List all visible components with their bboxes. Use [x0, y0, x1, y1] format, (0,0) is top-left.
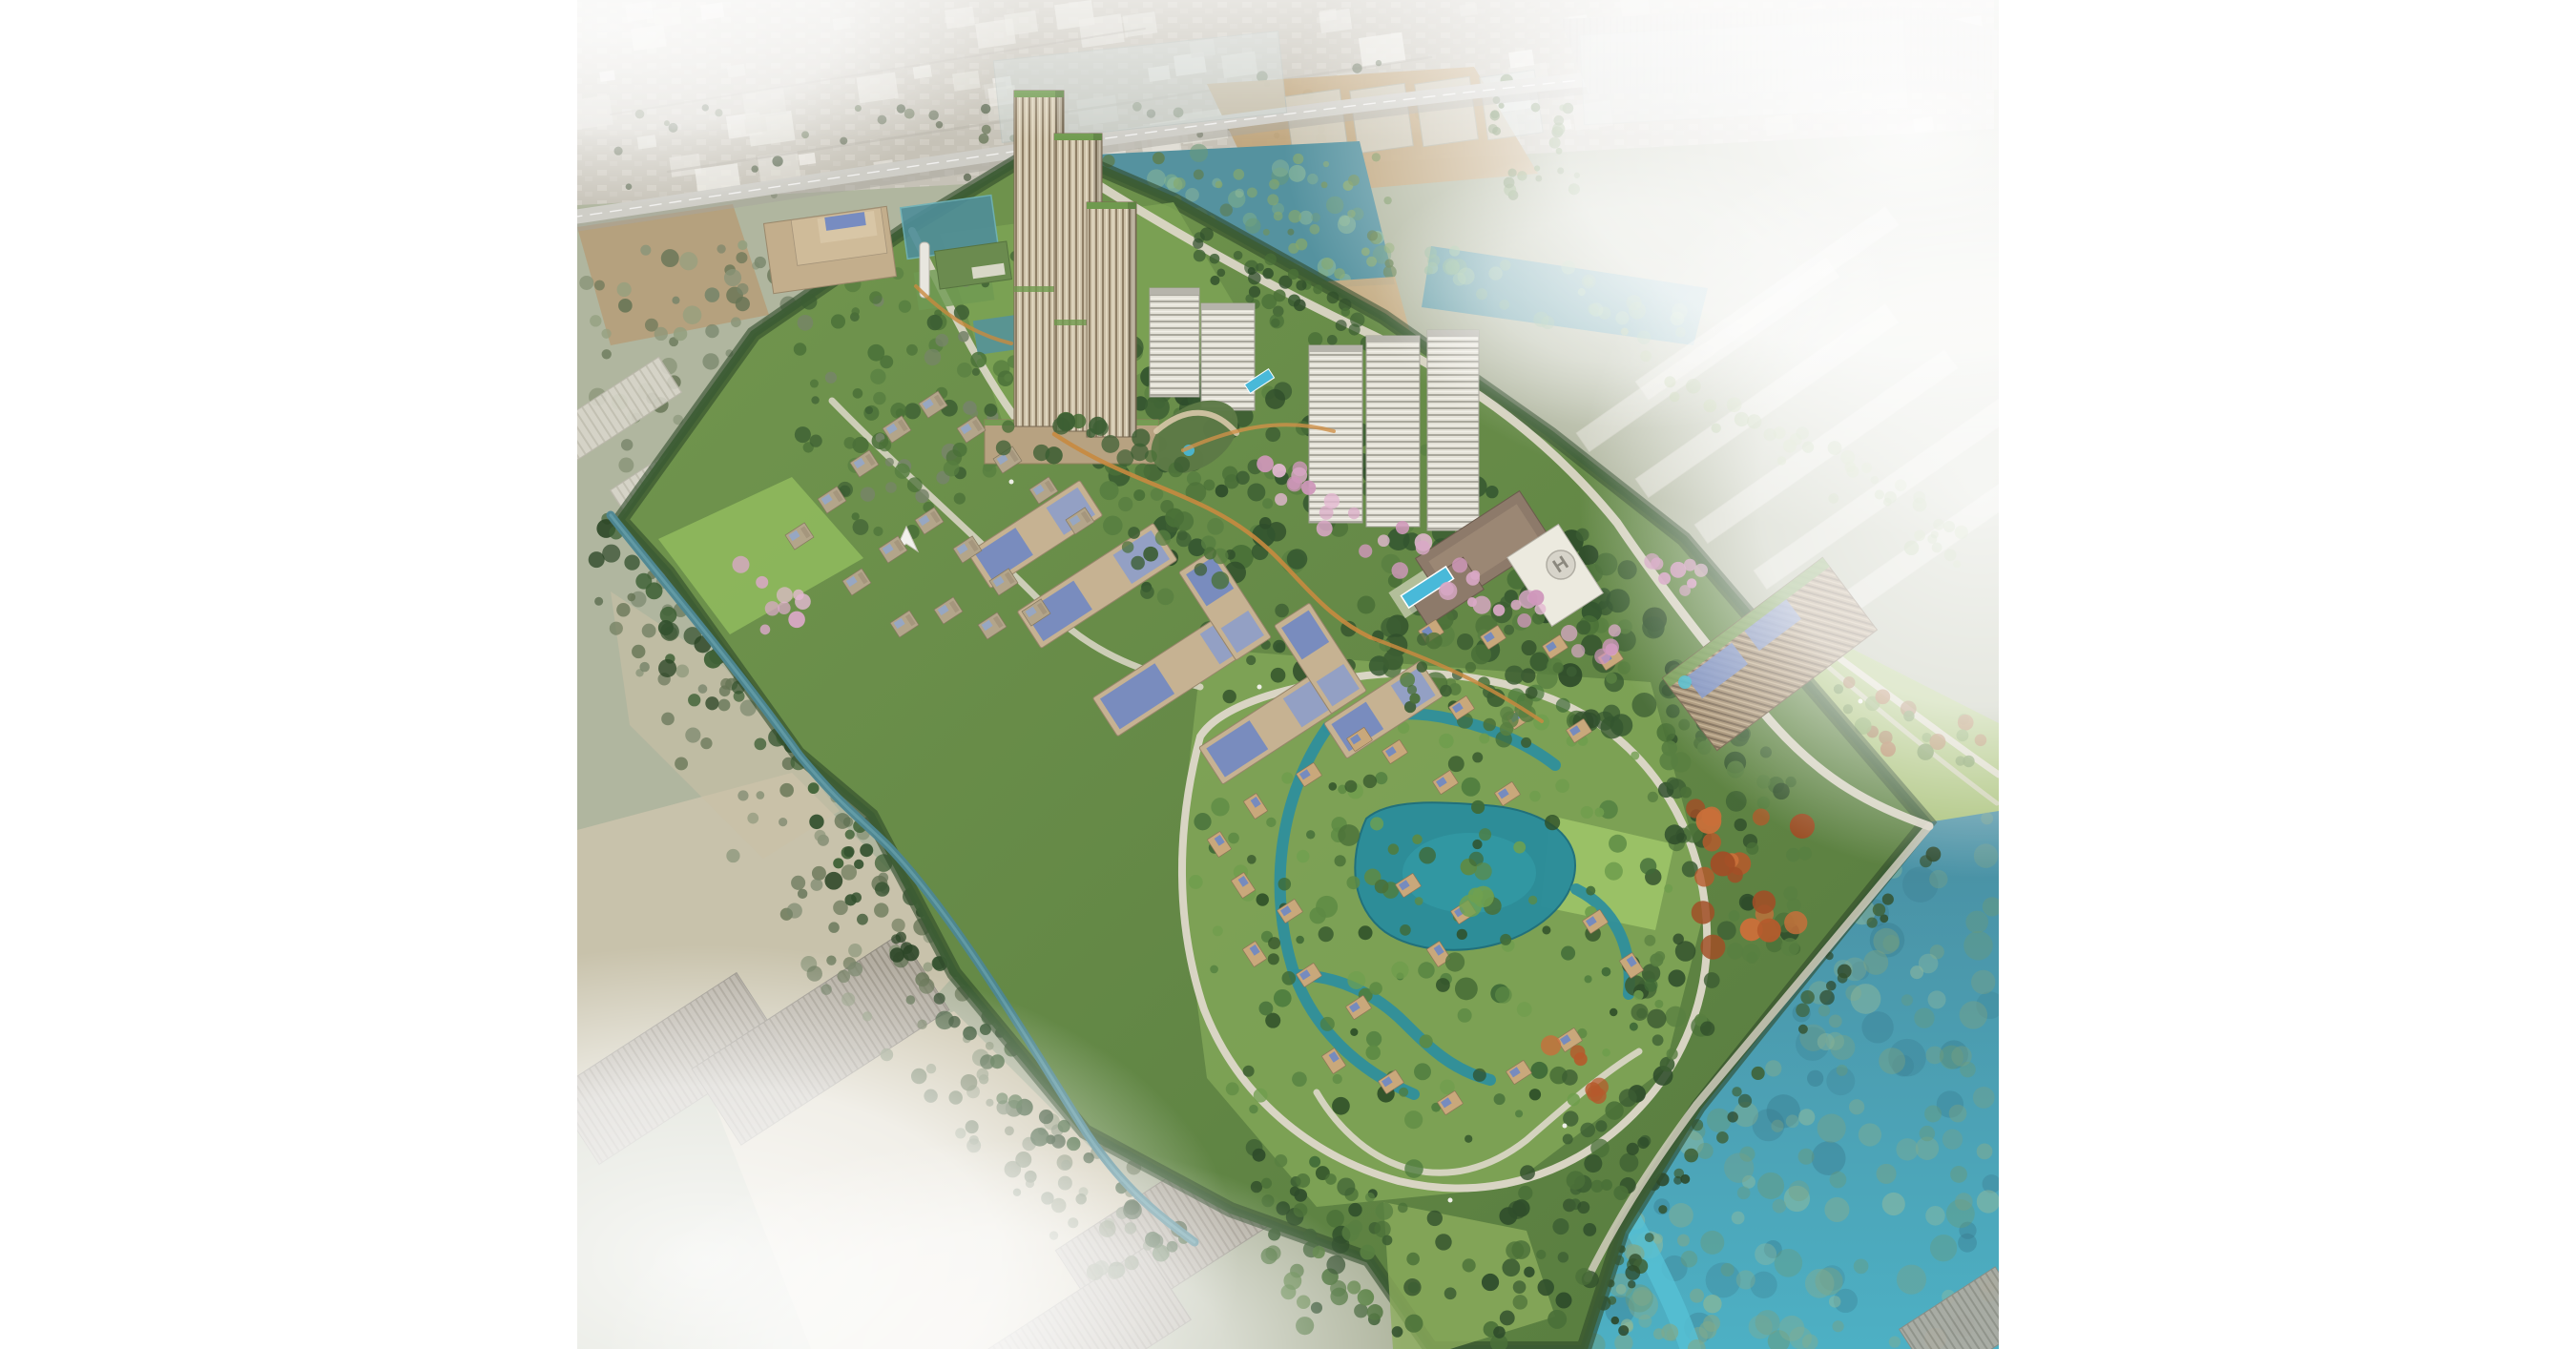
car-2: [1563, 1124, 1568, 1129]
white-midrise-1: [1150, 288, 1199, 397]
residential-tower-c-shade: [1128, 202, 1136, 437]
haze-top-band: [577, 0, 1999, 143]
white-midrise-1-cap: [1150, 288, 1199, 295]
aerial-masterplan-rendering: H: [0, 0, 2576, 1349]
car-5: [1257, 685, 1262, 690]
white-midrise-2: [1201, 303, 1255, 410]
rendering-canvas: H: [0, 0, 2576, 1349]
white-midrise-2-cap: [1201, 303, 1255, 310]
white-tower-1-cap: [1309, 345, 1362, 352]
scene-root: H: [172, 0, 2543, 1349]
car-4: [1009, 480, 1014, 485]
car-1: [1448, 1198, 1453, 1203]
fog-center-streak: [1374, 143, 1908, 429]
